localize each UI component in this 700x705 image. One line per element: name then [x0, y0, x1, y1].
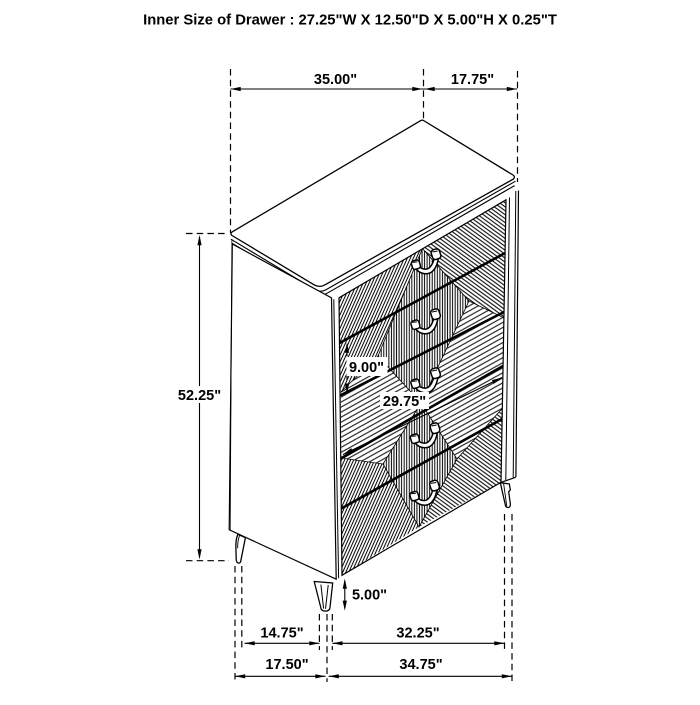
svg-text:14.75": 14.75" — [260, 626, 303, 642]
svg-text:17.50": 17.50" — [265, 657, 308, 673]
svg-text:32.25": 32.25" — [396, 626, 439, 642]
svg-text:34.75": 34.75" — [399, 657, 442, 673]
svg-text:52.25": 52.25" — [178, 388, 221, 404]
svg-text:Inner Size of Drawer : 27.25"W: Inner Size of Drawer : 27.25"W X 12.50"D… — [143, 13, 557, 29]
svg-text:17.75": 17.75" — [451, 72, 494, 88]
svg-text:9.00": 9.00" — [349, 360, 384, 376]
svg-text:5.00": 5.00" — [352, 588, 387, 604]
svg-text:35.00": 35.00" — [314, 72, 357, 88]
svg-text:29.75": 29.75" — [383, 394, 426, 410]
